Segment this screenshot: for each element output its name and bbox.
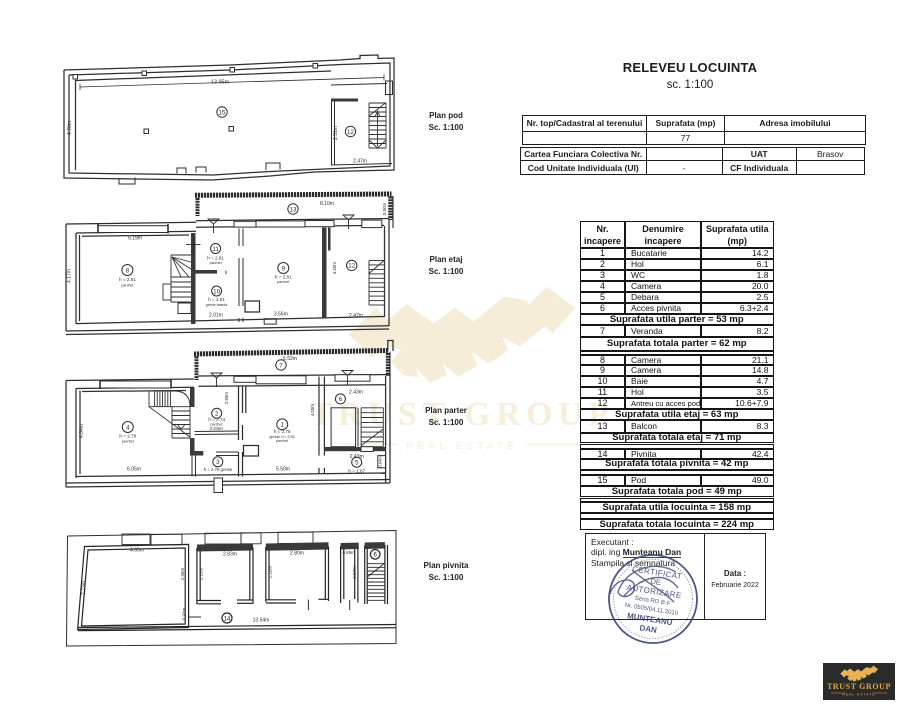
- svg-text:2.07m: 2.07m: [352, 566, 357, 579]
- svg-text:1: 1: [280, 422, 284, 429]
- svg-text:2.47m: 2.47m: [349, 313, 363, 319]
- svg-text:h = 2.76 gresie: h = 2.76 gresie: [204, 467, 233, 472]
- svg-text:Plan pod: Plan pod: [429, 111, 463, 120]
- svg-text:h = 2.81: h = 2.81: [207, 255, 224, 260]
- svg-text:2.83m: 2.83m: [223, 552, 237, 558]
- svg-text:h = 2.74: h = 2.74: [208, 417, 225, 422]
- svg-text:parchet: parchet: [277, 280, 289, 284]
- svg-text:2.55m: 2.55m: [224, 392, 229, 405]
- svg-text:7.73m: 7.73m: [81, 581, 87, 595]
- svg-text:12: 12: [347, 129, 354, 136]
- svg-text:7: 7: [279, 362, 283, 369]
- svg-text:13: 13: [290, 206, 297, 213]
- svg-text:2.15m: 2.15m: [199, 567, 204, 580]
- svg-text:0.84m: 0.84m: [378, 456, 383, 468]
- svg-text:4.04m: 4.04m: [79, 424, 85, 438]
- svg-text:Plan etaj: Plan etaj: [430, 255, 463, 264]
- svg-text:3.56m: 3.56m: [274, 312, 288, 318]
- svg-text:2.80m: 2.80m: [290, 551, 304, 557]
- svg-text:14: 14: [224, 616, 231, 622]
- svg-text:13.95m: 13.95m: [211, 80, 230, 86]
- svg-text:TRUST GROUP: TRUST GROUP: [827, 682, 891, 691]
- svg-text:parchet: parchet: [121, 284, 133, 288]
- svg-text:Plan pivnita: Plan pivnita: [424, 561, 469, 570]
- svg-text:6: 6: [339, 396, 343, 403]
- svg-text:h = 1.87: h = 1.87: [348, 469, 365, 474]
- svg-text:REAL ESTATE: REAL ESTATE: [842, 692, 875, 696]
- svg-text:6.52m: 6.52m: [283, 356, 297, 362]
- svg-text:6.05m: 6.05m: [127, 467, 141, 473]
- svg-text:Sc. 1:100: Sc. 1:100: [429, 573, 464, 582]
- svg-text:5.50m: 5.50m: [276, 467, 290, 473]
- svg-text:Sc. 1:100: Sc. 1:100: [429, 418, 464, 427]
- svg-text:4.20m: 4.20m: [332, 262, 337, 275]
- svg-text:5.19m: 5.19m: [128, 236, 142, 242]
- svg-text:12: 12: [348, 263, 355, 270]
- svg-text:h = 2.76: h = 2.76: [274, 429, 291, 434]
- svg-text:Sc. 1:100: Sc. 1:100: [429, 267, 464, 276]
- svg-text:h = 2.81: h = 2.81: [119, 277, 136, 282]
- svg-text:5: 5: [355, 460, 359, 467]
- svg-text:4.65m: 4.65m: [130, 548, 144, 554]
- svg-text:2.56m: 2.56m: [180, 567, 185, 580]
- svg-text:2.03m: 2.03m: [210, 426, 223, 431]
- svg-text:6: 6: [374, 553, 378, 559]
- svg-text:4.70m: 4.70m: [67, 121, 73, 135]
- svg-text:0.90m: 0.90m: [382, 202, 387, 215]
- svg-text:parchet: parchet: [276, 439, 288, 443]
- svg-text:10: 10: [213, 288, 220, 295]
- svg-text:11: 11: [212, 246, 219, 253]
- svg-text:DAN: DAN: [639, 623, 658, 635]
- svg-text:0.93m: 0.93m: [182, 607, 187, 620]
- svg-text:h = 2.81: h = 2.81: [208, 297, 225, 302]
- svg-text:9: 9: [282, 265, 286, 272]
- svg-text:2.10m: 2.10m: [268, 565, 273, 578]
- svg-text:h = 2.81: h = 2.81: [275, 275, 292, 280]
- svg-text:2.51m: 2.51m: [333, 126, 339, 140]
- svg-text:4.17m: 4.17m: [67, 269, 73, 283]
- svg-text:2.47m: 2.47m: [353, 159, 367, 165]
- svg-text:8: 8: [126, 267, 130, 274]
- svg-text:15: 15: [219, 109, 226, 116]
- svg-text:Sc. 1:100: Sc. 1:100: [429, 123, 464, 132]
- svg-text:Plan parter: Plan parter: [425, 406, 467, 415]
- svg-text:2.43m: 2.43m: [349, 390, 363, 396]
- svg-text:2.43m: 2.43m: [350, 454, 364, 460]
- svg-text:h = 2.78: h = 2.78: [119, 434, 136, 439]
- svg-text:4.05m: 4.05m: [310, 404, 315, 417]
- svg-text:2.01m: 2.01m: [209, 313, 223, 319]
- svg-text:4: 4: [126, 424, 130, 431]
- svg-text:3: 3: [216, 459, 220, 466]
- svg-text:8.10m: 8.10m: [320, 201, 334, 207]
- svg-text:parchet: parchet: [122, 440, 134, 444]
- svg-text:0.85m: 0.85m: [342, 550, 355, 555]
- svg-text:parchet: parchet: [210, 261, 222, 265]
- svg-text:13.54m: 13.54m: [253, 618, 270, 624]
- svg-text:gresie faianta: gresie faianta: [206, 303, 228, 307]
